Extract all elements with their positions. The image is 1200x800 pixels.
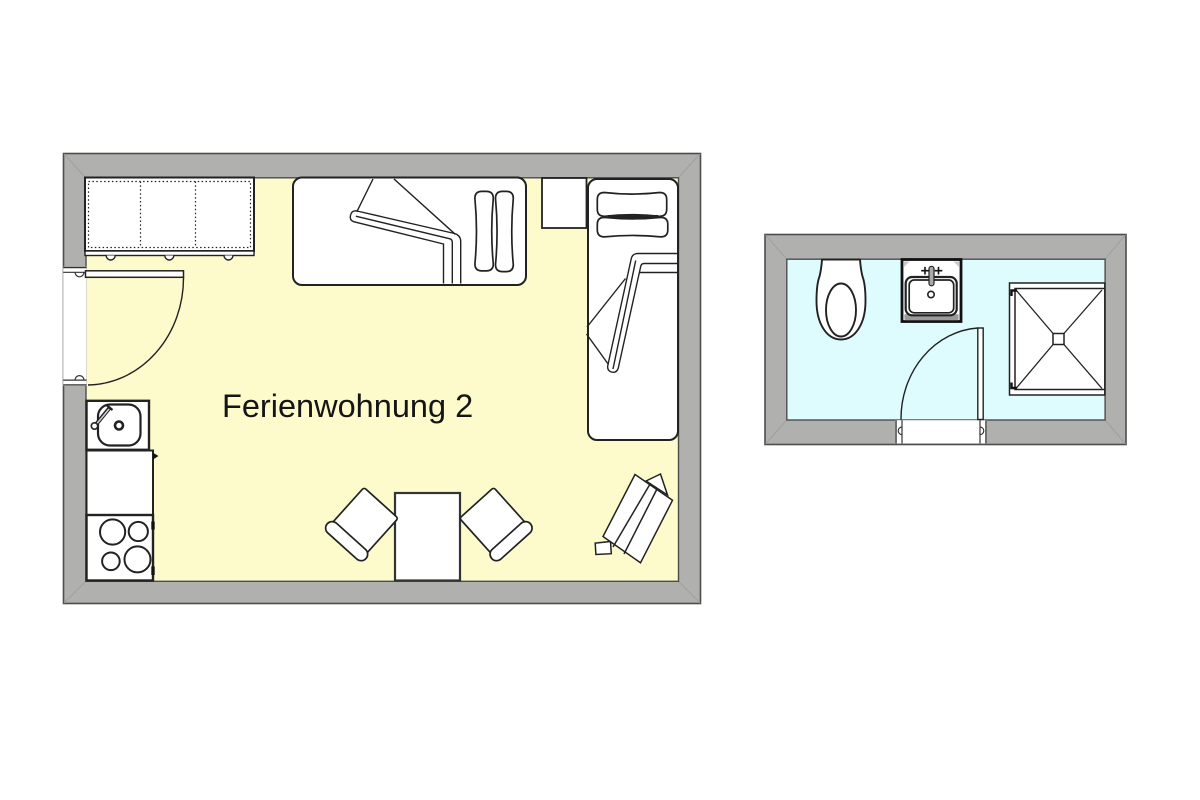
- svg-text:Ferienwohnung 2: Ferienwohnung 2: [222, 388, 473, 424]
